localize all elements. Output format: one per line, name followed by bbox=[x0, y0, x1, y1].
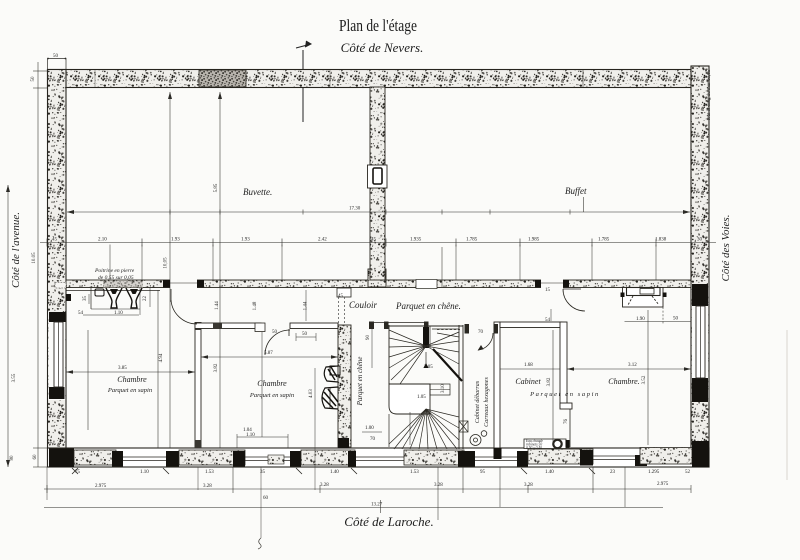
svg-text:75: 75 bbox=[75, 470, 81, 475]
svg-text:70: 70 bbox=[370, 437, 376, 442]
svg-text:Parquet en chêne.: Parquet en chêne. bbox=[395, 301, 461, 311]
svg-text:5.85: 5.85 bbox=[214, 183, 219, 192]
svg-text:52: 52 bbox=[685, 470, 691, 475]
svg-text:50: 50 bbox=[53, 54, 59, 59]
svg-text:Côté de Nevers.: Côté de Nevers. bbox=[341, 40, 424, 55]
svg-text:23: 23 bbox=[610, 470, 616, 475]
svg-text:3.28: 3.28 bbox=[524, 483, 533, 488]
svg-text:1.785: 1.785 bbox=[466, 238, 478, 243]
svg-text:1.48: 1.48 bbox=[253, 301, 258, 310]
svg-text:Parquet en sapin: Parquet en sapin bbox=[529, 391, 600, 398]
svg-text:1.00: 1.00 bbox=[365, 426, 374, 431]
svg-text:10.05: 10.05 bbox=[32, 252, 37, 264]
svg-text:45: 45 bbox=[52, 238, 58, 243]
svg-text:2.975: 2.975 bbox=[657, 482, 669, 487]
svg-text:54: 54 bbox=[545, 318, 551, 323]
svg-text:3.82: 3.82 bbox=[547, 377, 552, 386]
svg-text:1.44: 1.44 bbox=[215, 301, 220, 310]
svg-text:3.85: 3.85 bbox=[118, 366, 127, 371]
svg-text:Chambre.: Chambre. bbox=[608, 377, 639, 386]
svg-text:50: 50 bbox=[302, 332, 308, 337]
svg-text:Chambre: Chambre bbox=[117, 375, 147, 384]
svg-text:Chambre: Chambre bbox=[257, 379, 287, 388]
svg-text:30: 30 bbox=[697, 238, 703, 243]
svg-text:3.82: 3.82 bbox=[214, 363, 219, 372]
svg-text:2.975: 2.975 bbox=[95, 484, 107, 489]
svg-text:3.28: 3.28 bbox=[320, 483, 329, 488]
svg-text:13.27: 13.27 bbox=[371, 503, 383, 508]
svg-text:76: 76 bbox=[564, 419, 569, 425]
svg-text:2.05: 2.05 bbox=[424, 365, 433, 370]
svg-text:5.87: 5.87 bbox=[264, 351, 273, 356]
svg-text:1.40: 1.40 bbox=[330, 470, 339, 475]
svg-text:90: 90 bbox=[366, 335, 371, 341]
svg-text:1.93: 1.93 bbox=[171, 238, 180, 243]
svg-text:1.93: 1.93 bbox=[241, 238, 250, 243]
svg-text:2.10: 2.10 bbox=[98, 238, 107, 243]
svg-text:3.55: 3.55 bbox=[12, 373, 17, 382]
svg-text:1.90: 1.90 bbox=[636, 317, 645, 322]
svg-text:1.10: 1.10 bbox=[114, 311, 123, 316]
svg-text:1.295: 1.295 bbox=[648, 470, 660, 475]
svg-text:45: 45 bbox=[338, 294, 344, 299]
svg-text:80: 80 bbox=[10, 455, 15, 461]
svg-text:35: 35 bbox=[83, 296, 88, 302]
svg-text:1.10: 1.10 bbox=[140, 470, 149, 475]
svg-text:1.785: 1.785 bbox=[598, 238, 610, 243]
svg-text:Carreaux hexagones: Carreaux hexagones bbox=[484, 377, 490, 427]
svg-text:45: 45 bbox=[371, 238, 377, 243]
svg-text:Buffet: Buffet bbox=[565, 186, 587, 196]
svg-text:70: 70 bbox=[478, 330, 484, 335]
svg-text:1.40: 1.40 bbox=[545, 470, 554, 475]
svg-text:Plan de l'étage: Plan de l'étage bbox=[339, 16, 417, 35]
svg-text:46: 46 bbox=[342, 437, 348, 442]
svg-text:2.42: 2.42 bbox=[318, 238, 327, 243]
svg-text:tout le long du mur 10,05: tout le long du mur 10,05 bbox=[707, 69, 712, 120]
svg-text:54: 54 bbox=[78, 311, 84, 316]
svg-text:Cabinet débarras: Cabinet débarras bbox=[475, 380, 481, 423]
svg-text:17.30: 17.30 bbox=[349, 207, 361, 212]
svg-text:Cabinet: Cabinet bbox=[515, 377, 541, 386]
svg-text:10,05: 10,05 bbox=[164, 257, 169, 269]
svg-text:3.10: 3.10 bbox=[441, 384, 446, 393]
svg-text:Côté de Laroche.: Côté de Laroche. bbox=[344, 514, 433, 529]
svg-text:22: 22 bbox=[143, 296, 148, 302]
svg-text:Poitrine en pierre: Poitrine en pierre bbox=[94, 268, 135, 274]
svg-text:50: 50 bbox=[31, 76, 36, 82]
svg-text:15: 15 bbox=[545, 288, 551, 293]
svg-text:3.28: 3.28 bbox=[434, 483, 443, 488]
svg-text:Côté des Voies.: Côté des Voies. bbox=[720, 215, 732, 282]
svg-text:Parquet en chêne: Parquet en chêne bbox=[356, 357, 364, 407]
svg-text:3.52: 3.52 bbox=[642, 375, 647, 384]
svg-text:95: 95 bbox=[480, 470, 486, 475]
svg-text:1.985: 1.985 bbox=[528, 238, 540, 243]
svg-text:1.53: 1.53 bbox=[410, 470, 419, 475]
svg-text:1.935: 1.935 bbox=[410, 238, 422, 243]
svg-text:1.838: 1.838 bbox=[655, 238, 667, 243]
svg-text:1.05: 1.05 bbox=[417, 395, 426, 400]
svg-text:60: 60 bbox=[263, 496, 269, 501]
svg-text:1.10: 1.10 bbox=[246, 433, 255, 438]
svg-text:Parquet en sapin: Parquet en sapin bbox=[249, 392, 294, 399]
svg-text:de 0,55 sur 0,05: de 0,55 sur 0,05 bbox=[98, 275, 134, 281]
svg-text:50: 50 bbox=[272, 330, 278, 335]
svg-text:4.94: 4.94 bbox=[159, 353, 164, 362]
svg-text:3.28: 3.28 bbox=[203, 484, 212, 489]
svg-text:Parquet en sapin: Parquet en sapin bbox=[107, 387, 152, 394]
svg-text:Côté de l'avenue.: Côté de l'avenue. bbox=[10, 212, 22, 288]
svg-text:3.12: 3.12 bbox=[628, 363, 637, 368]
svg-text:4.03: 4.03 bbox=[309, 389, 314, 398]
svg-text:50: 50 bbox=[673, 317, 679, 322]
svg-text:1.68: 1.68 bbox=[524, 363, 533, 368]
svg-text:Buvette.: Buvette. bbox=[243, 187, 272, 197]
svg-text:60: 60 bbox=[33, 454, 38, 460]
svg-text:1.53: 1.53 bbox=[205, 470, 214, 475]
svg-text:Couloir: Couloir bbox=[349, 300, 378, 310]
